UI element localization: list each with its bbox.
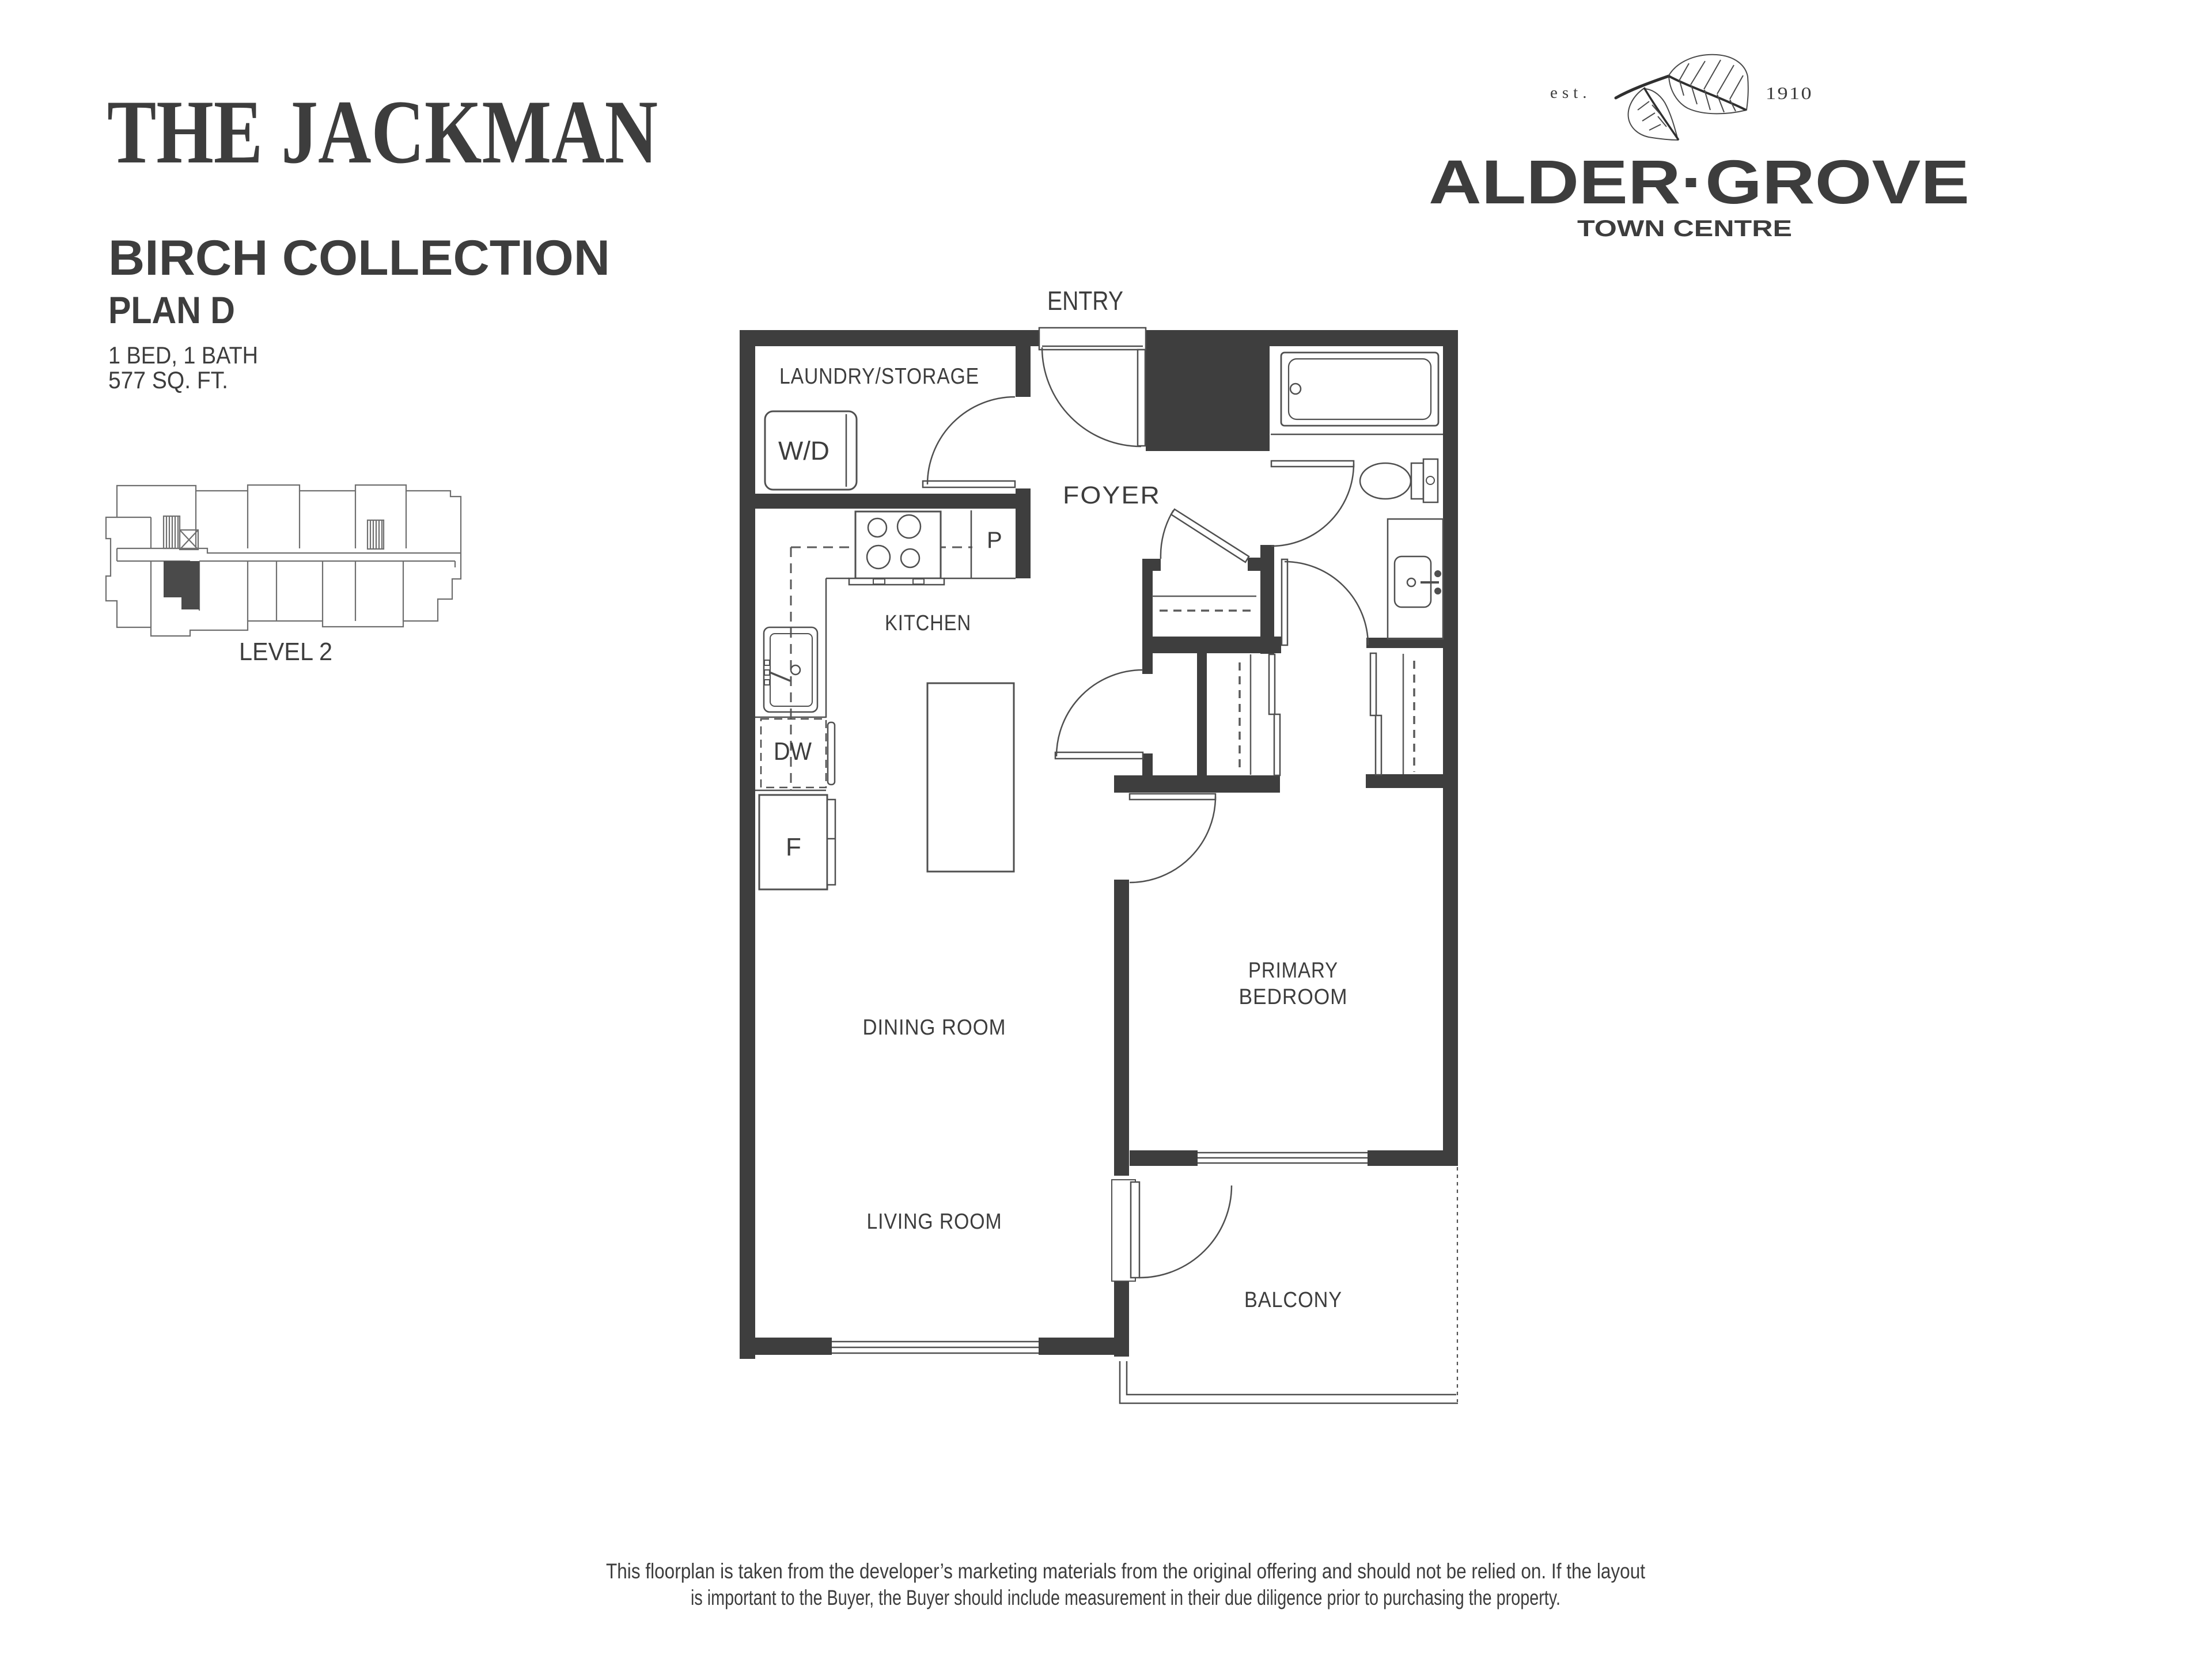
svg-text:KITCHEN: KITCHEN [885, 611, 971, 635]
svg-text:577 SQ. FT.: 577 SQ. FT. [108, 366, 228, 393]
svg-text:is important to the Buyer, the: is important to the Buyer, the Buyer sho… [691, 1586, 1560, 1609]
svg-text:ENTRY: ENTRY [1047, 286, 1123, 316]
svg-text:DW: DW [774, 737, 812, 766]
svg-text:THE JACKMAN: THE JACKMAN [107, 82, 658, 183]
svg-text:DINING ROOM: DINING ROOM [863, 1016, 1006, 1040]
svg-text:PRIMARY: PRIMARY [1248, 959, 1338, 983]
svg-text:F: F [786, 833, 801, 861]
svg-text:FOYER: FOYER [1063, 482, 1161, 509]
svg-text:ALDER·GROVE: ALDER·GROVE [1429, 147, 1969, 217]
svg-text:BEDROOM: BEDROOM [1239, 985, 1348, 1009]
svg-text:1 BED, 1 BATH: 1 BED, 1 BATH [108, 342, 258, 369]
svg-text:W/D: W/D [778, 436, 829, 465]
svg-text:LIVING ROOM: LIVING ROOM [867, 1210, 1002, 1234]
svg-text:TOWN CENTRE: TOWN CENTRE [1577, 216, 1792, 241]
svg-text:LEVEL 2: LEVEL 2 [239, 638, 332, 666]
svg-text:BIRCH COLLECTION: BIRCH COLLECTION [108, 230, 610, 286]
svg-text:LAUNDRY/STORAGE: LAUNDRY/STORAGE [779, 364, 979, 389]
svg-text:BALCONY: BALCONY [1244, 1288, 1342, 1312]
svg-text:This floorplan is taken from t: This floorplan is taken from the develop… [606, 1559, 1646, 1583]
svg-text:PLAN D: PLAN D [108, 289, 235, 331]
svg-text:1910: 1910 [1766, 83, 1813, 103]
svg-text:est.: est. [1550, 84, 1591, 102]
svg-text:P: P [987, 528, 1002, 553]
